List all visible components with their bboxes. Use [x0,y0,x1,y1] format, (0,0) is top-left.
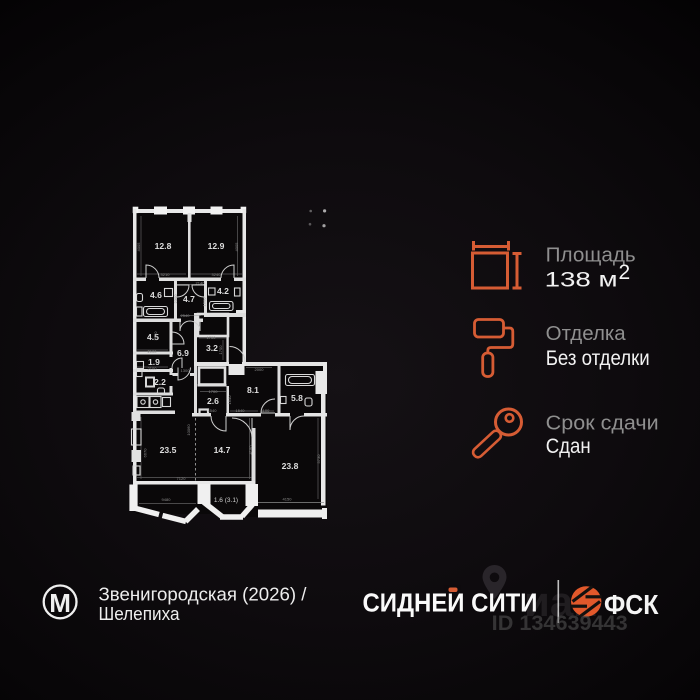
svg-text:2.2: 2.2 [154,377,166,387]
svg-text:4.6: 4.6 [150,290,162,300]
svg-text:3.2: 3.2 [206,343,218,353]
svg-text:Отделка: Отделка [546,323,627,345]
svg-text:1640: 1640 [227,395,232,405]
svg-text:Сдан: Сдан [546,435,591,458]
svg-text:12.8: 12.8 [155,241,172,251]
svg-text:23.5: 23.5 [160,445,177,455]
svg-text:М: М [49,588,71,618]
svg-text:2: 2 [619,261,631,284]
svg-text:8.1: 8.1 [247,385,259,395]
svg-text:4.2: 4.2 [217,286,229,296]
svg-text:1700: 1700 [218,345,223,355]
svg-text:Срок сдачи: Срок сдачи [546,412,659,434]
svg-text:1700: 1700 [207,335,217,340]
svg-text:9480: 9480 [162,497,172,502]
svg-text:23.8: 23.8 [282,461,299,471]
svg-text:2140: 2140 [196,281,206,286]
svg-text:7120: 7120 [177,476,187,481]
svg-text:2130: 2130 [153,331,158,341]
svg-text:4005: 4005 [234,242,239,252]
svg-text:2540: 2540 [181,313,191,318]
svg-text:10060: 10060 [186,424,191,436]
svg-text:Без отделки: Без отделки [546,347,650,370]
svg-text:4005: 4005 [136,242,141,252]
svg-text:2100: 2100 [148,366,158,371]
svg-text:1540: 1540 [208,408,218,413]
svg-text:3240: 3240 [212,272,222,277]
svg-text:Звенигородская (2026) /: Звенигородская (2026) / [99,584,308,605]
svg-text:4.7: 4.7 [183,294,195,304]
svg-text:5.8: 5.8 [291,393,303,403]
svg-text:1300: 1300 [181,368,191,373]
svg-text:4150: 4150 [283,497,293,502]
svg-text:2100: 2100 [148,349,158,354]
svg-text:3210: 3210 [161,272,171,277]
svg-text:5730: 5730 [316,454,321,464]
svg-text:12.9: 12.9 [208,241,225,251]
svg-text:Шелепиха: Шелепиха [99,603,181,624]
svg-text:1600: 1600 [202,297,207,307]
svg-text:1100: 1100 [261,408,270,413]
svg-text:2300: 2300 [173,294,178,304]
svg-text:ID 134639443: ID 134639443 [492,612,628,635]
svg-text:1540: 1540 [236,408,246,413]
svg-text:2000: 2000 [255,367,265,372]
svg-text:4180: 4180 [248,445,253,455]
svg-text:6670: 6670 [143,448,148,458]
svg-text:1700: 1700 [209,389,219,394]
svg-text:1.6 (3.1): 1.6 (3.1) [214,497,238,504]
svg-text:14.7: 14.7 [214,445,231,455]
svg-text:138 м: 138 м [545,268,618,291]
svg-text:2.6: 2.6 [207,396,219,406]
svg-text:6.9: 6.9 [177,348,189,358]
